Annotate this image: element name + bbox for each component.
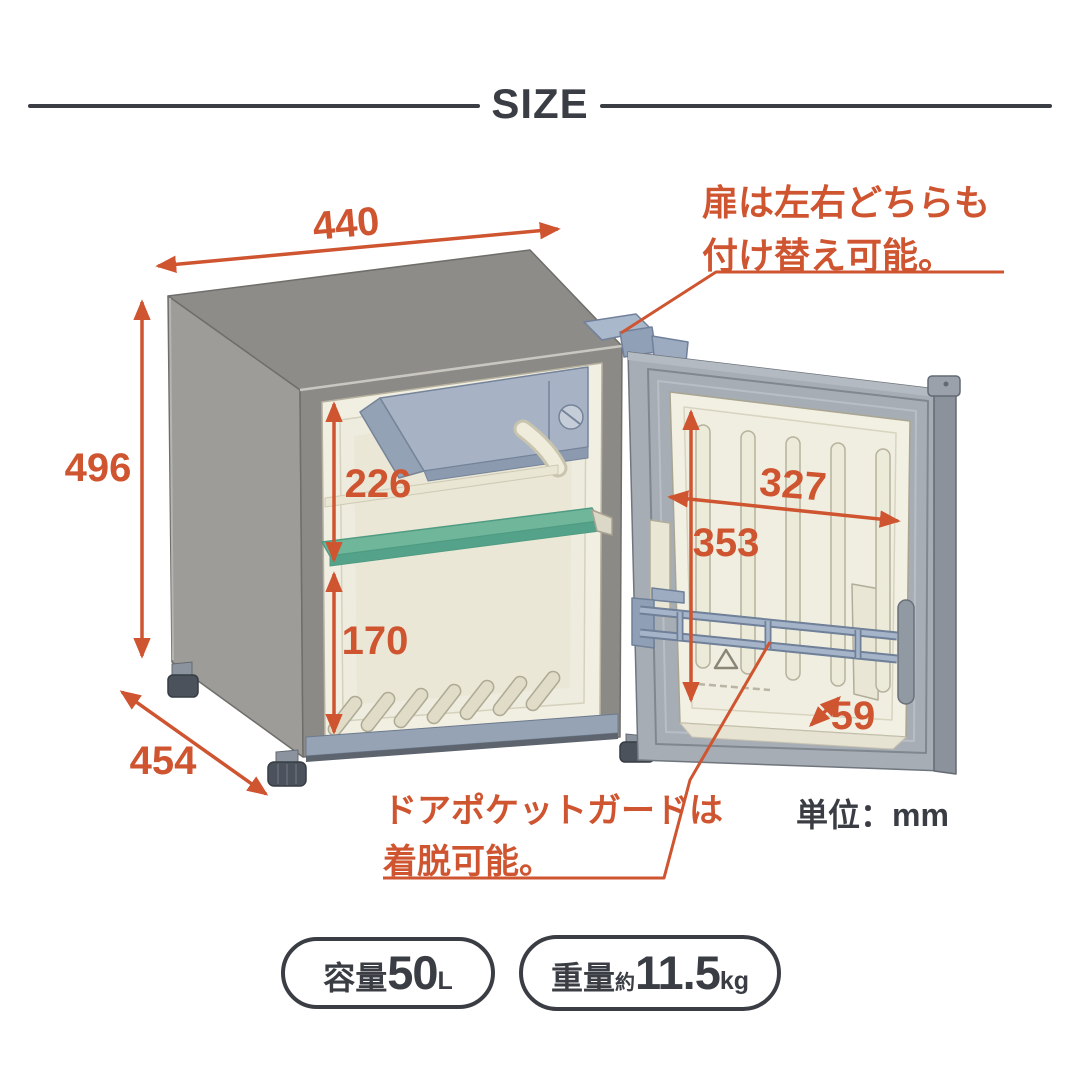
capacity-unit: L	[438, 967, 453, 995]
dim-label-inner-lower: 170	[342, 619, 409, 663]
weight-unit: kg	[720, 967, 749, 995]
weight-label: 重量	[551, 960, 615, 996]
weight-prefix: 約	[615, 972, 635, 994]
size-infographic: SIZE	[0, 0, 1080, 1080]
fridge-illustration: 440 496 454 226 170 327 353 59	[0, 0, 1080, 1080]
weight-badge: 重量約11.5kg	[519, 935, 781, 1011]
capacity-value: 50	[387, 946, 437, 999]
unit-note: 単位：mm	[796, 790, 949, 836]
annotation-door-reversible-line1: 扉は左右どちらも	[702, 176, 990, 229]
capacity-badge: 容量50L	[281, 937, 495, 1009]
annotation-door-reversible-line2: 付け替え可能。	[702, 229, 990, 282]
annotation-door-reversible: 扉は左右どちらも 付け替え可能。	[702, 176, 990, 282]
door-edge-cap	[928, 376, 960, 396]
open-door	[628, 352, 960, 774]
door-edge-bar	[934, 386, 956, 774]
door-handle-slot	[898, 600, 914, 704]
dim-label-pocket: 59	[831, 694, 876, 738]
dim-label-height: 496	[65, 446, 132, 490]
annotation-door-pocket: ドアポケットガードは 着脱可能。	[383, 786, 723, 888]
dim-label-depth: 454	[130, 739, 197, 783]
dim-label-inner-upper: 226	[345, 462, 412, 506]
annotation-door-pocket-line2: 着脱可能。	[383, 837, 723, 888]
dim-label-door-height: 353	[693, 521, 760, 565]
dim-label-door-width: 327	[758, 460, 828, 510]
capacity-label: 容量	[323, 960, 387, 996]
back-left-foot	[168, 675, 198, 697]
weight-value: 11.5	[635, 946, 720, 999]
cabinet-interior	[306, 363, 618, 762]
dim-label-width: 440	[311, 199, 381, 249]
annotation-door-pocket-line1: ドアポケットガードは	[383, 786, 723, 837]
